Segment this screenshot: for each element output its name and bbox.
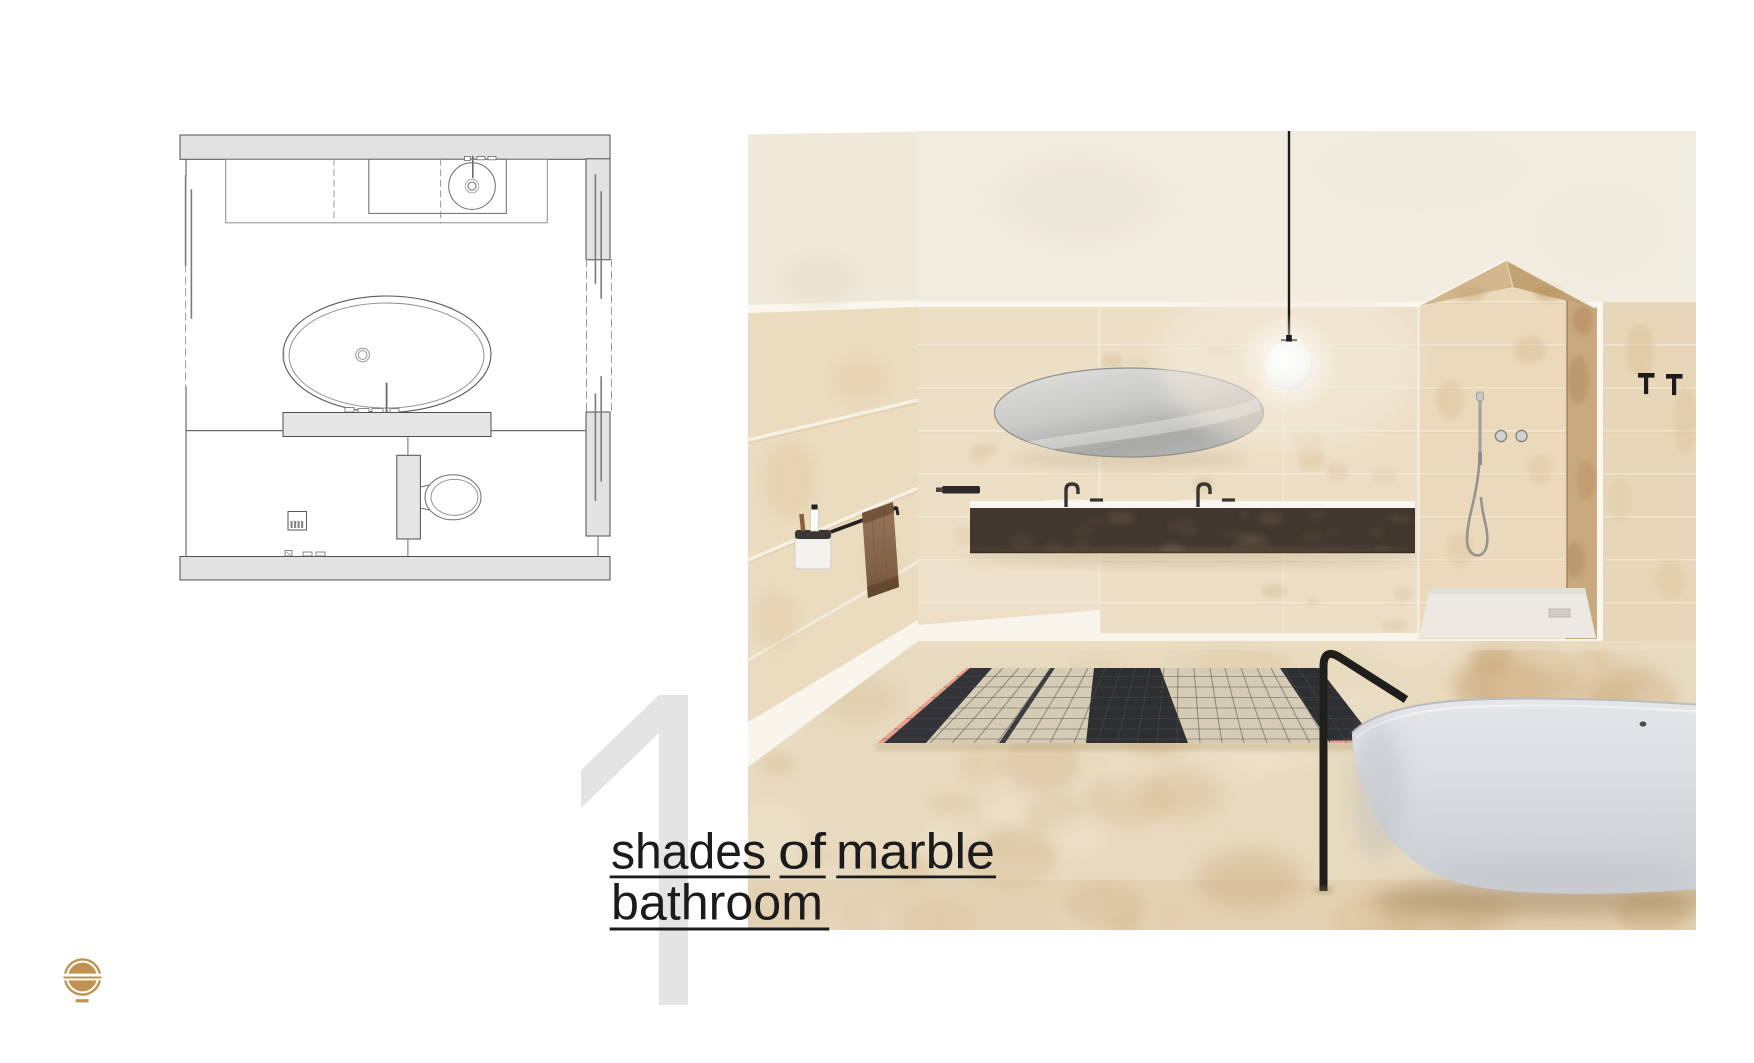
svg-text:shadesofmarble: shadesofmarble xyxy=(611,824,995,880)
svg-text:bathroom: bathroom xyxy=(611,875,823,931)
